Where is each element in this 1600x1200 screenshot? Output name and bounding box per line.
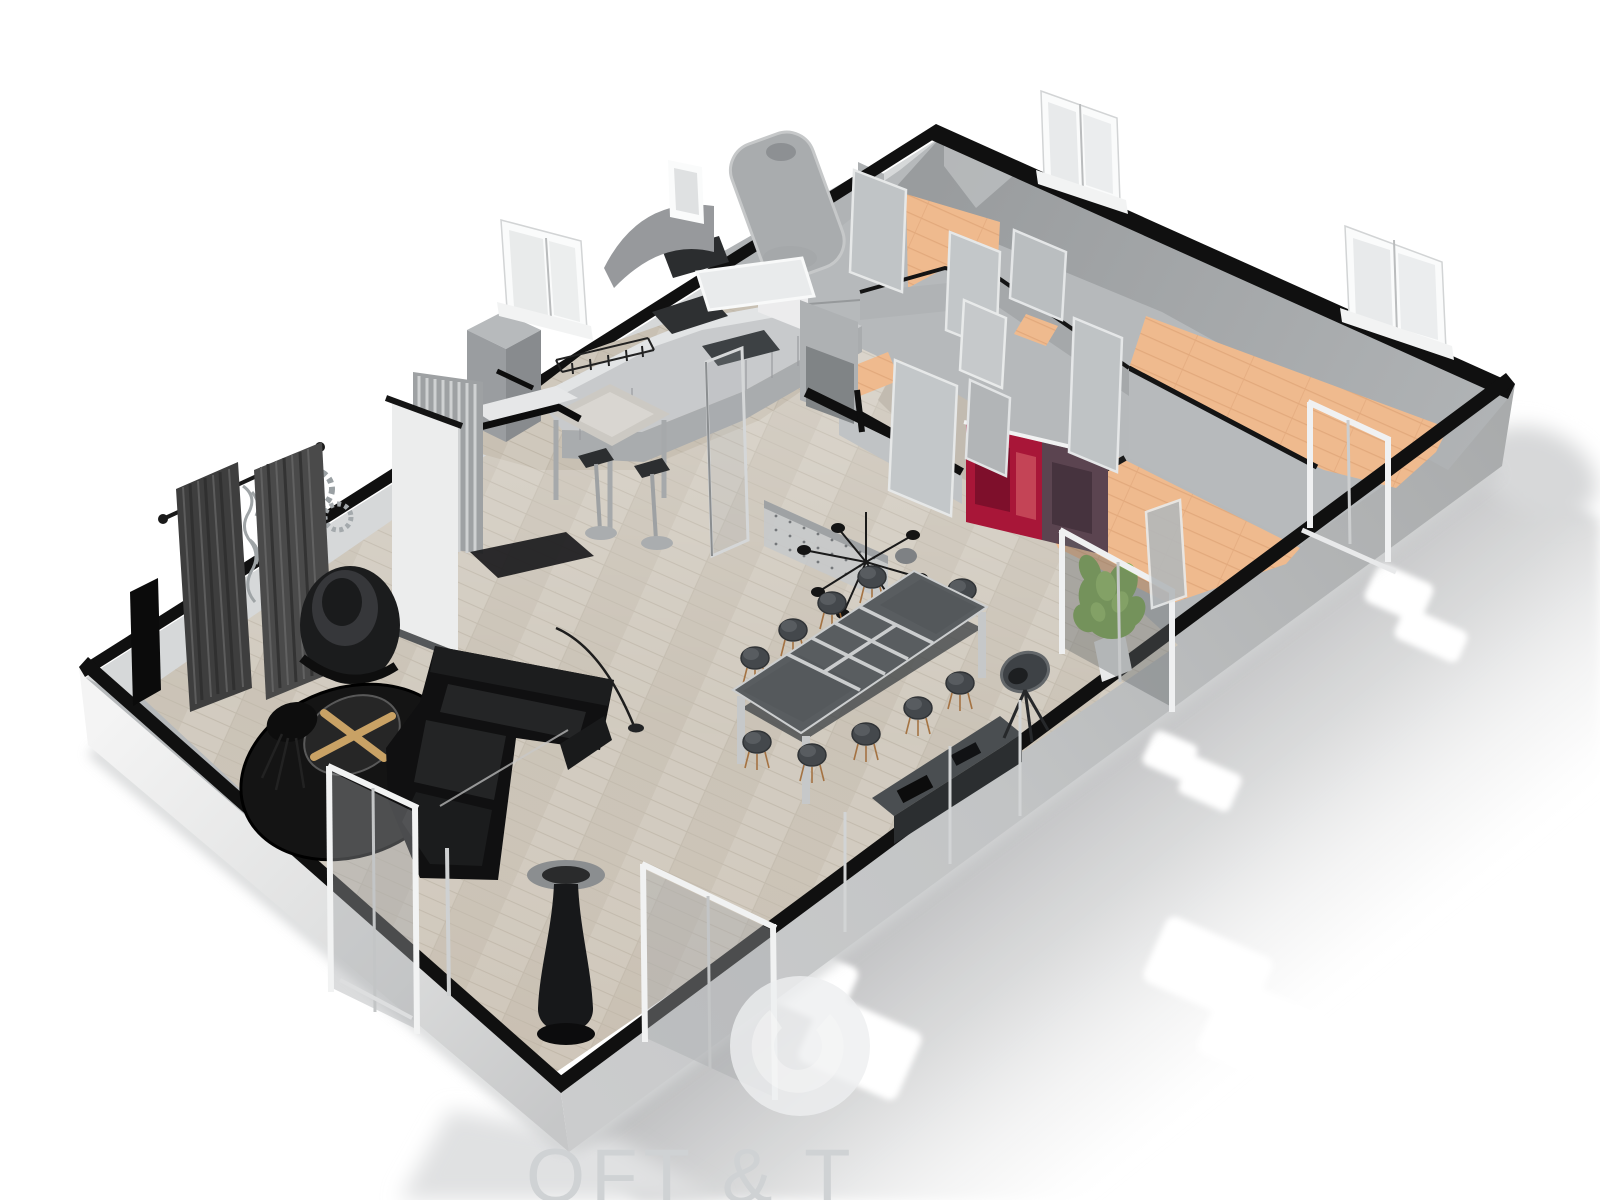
svg-text:OFT & T: OFT & T [526,1134,857,1200]
